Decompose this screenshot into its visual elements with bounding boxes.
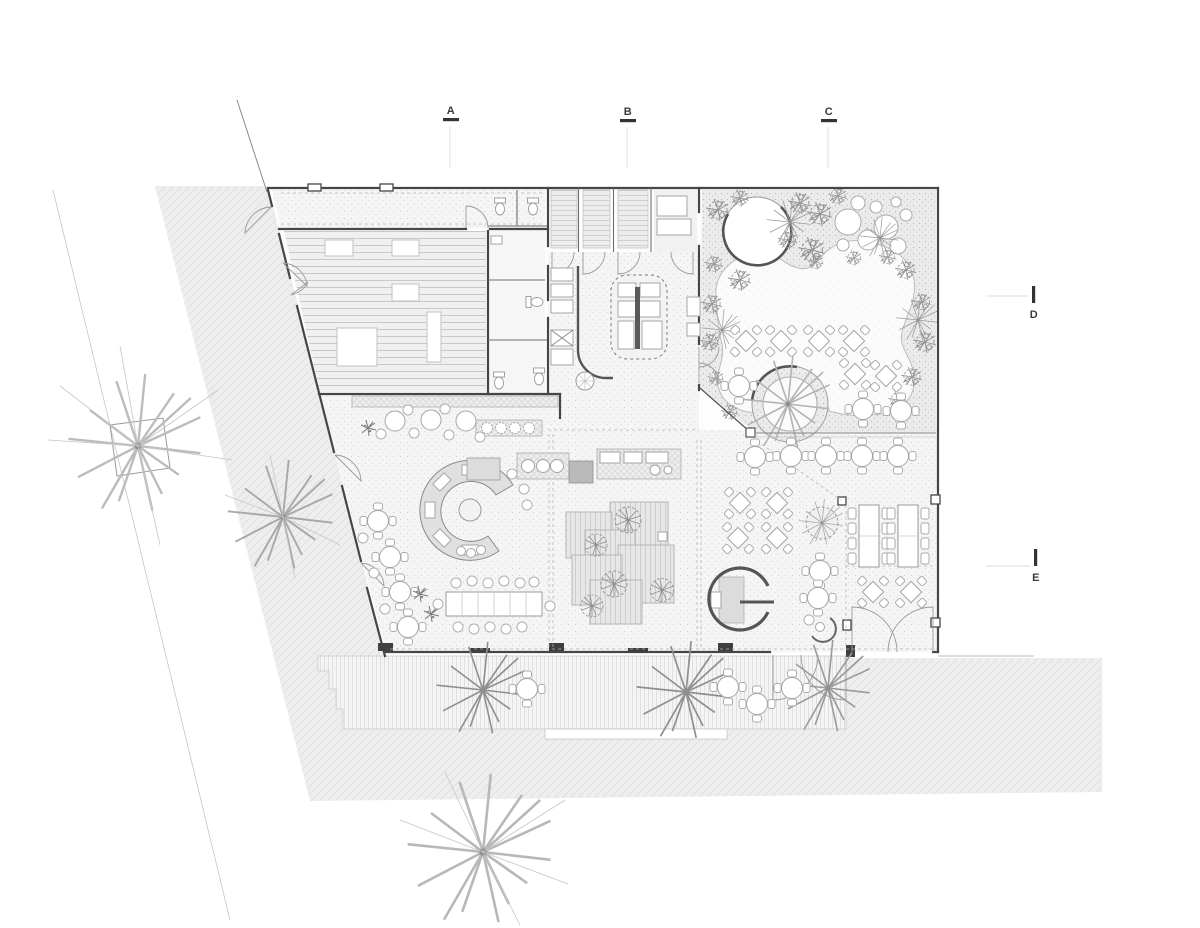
bench-counter — [352, 396, 558, 407]
section-marker-a-label: A — [447, 105, 455, 117]
storage-room — [551, 190, 577, 248]
section-marker-b-label: B — [624, 106, 632, 118]
storage-room — [618, 190, 648, 248]
terrace-deck — [318, 656, 846, 729]
section-tick-c — [821, 119, 837, 122]
section-marker-e-label: E — [1032, 572, 1040, 584]
section-marker-d-label: D — [1030, 309, 1038, 321]
floor-plan-canvas: A B C D E — [0, 0, 1200, 928]
section-tick-a — [443, 118, 459, 121]
terrace-curb — [545, 729, 727, 739]
section-tick-b — [620, 119, 636, 122]
property-line — [237, 100, 267, 192]
section-marker-c-label: C — [825, 106, 833, 118]
section-tick-e — [1034, 549, 1037, 566]
storage-room — [583, 190, 610, 248]
floor-plan-drawing: A B C D E — [0, 0, 1200, 928]
kitchen-island-icon — [611, 275, 667, 359]
section-tick-d — [1032, 286, 1035, 303]
terrace — [318, 656, 846, 739]
